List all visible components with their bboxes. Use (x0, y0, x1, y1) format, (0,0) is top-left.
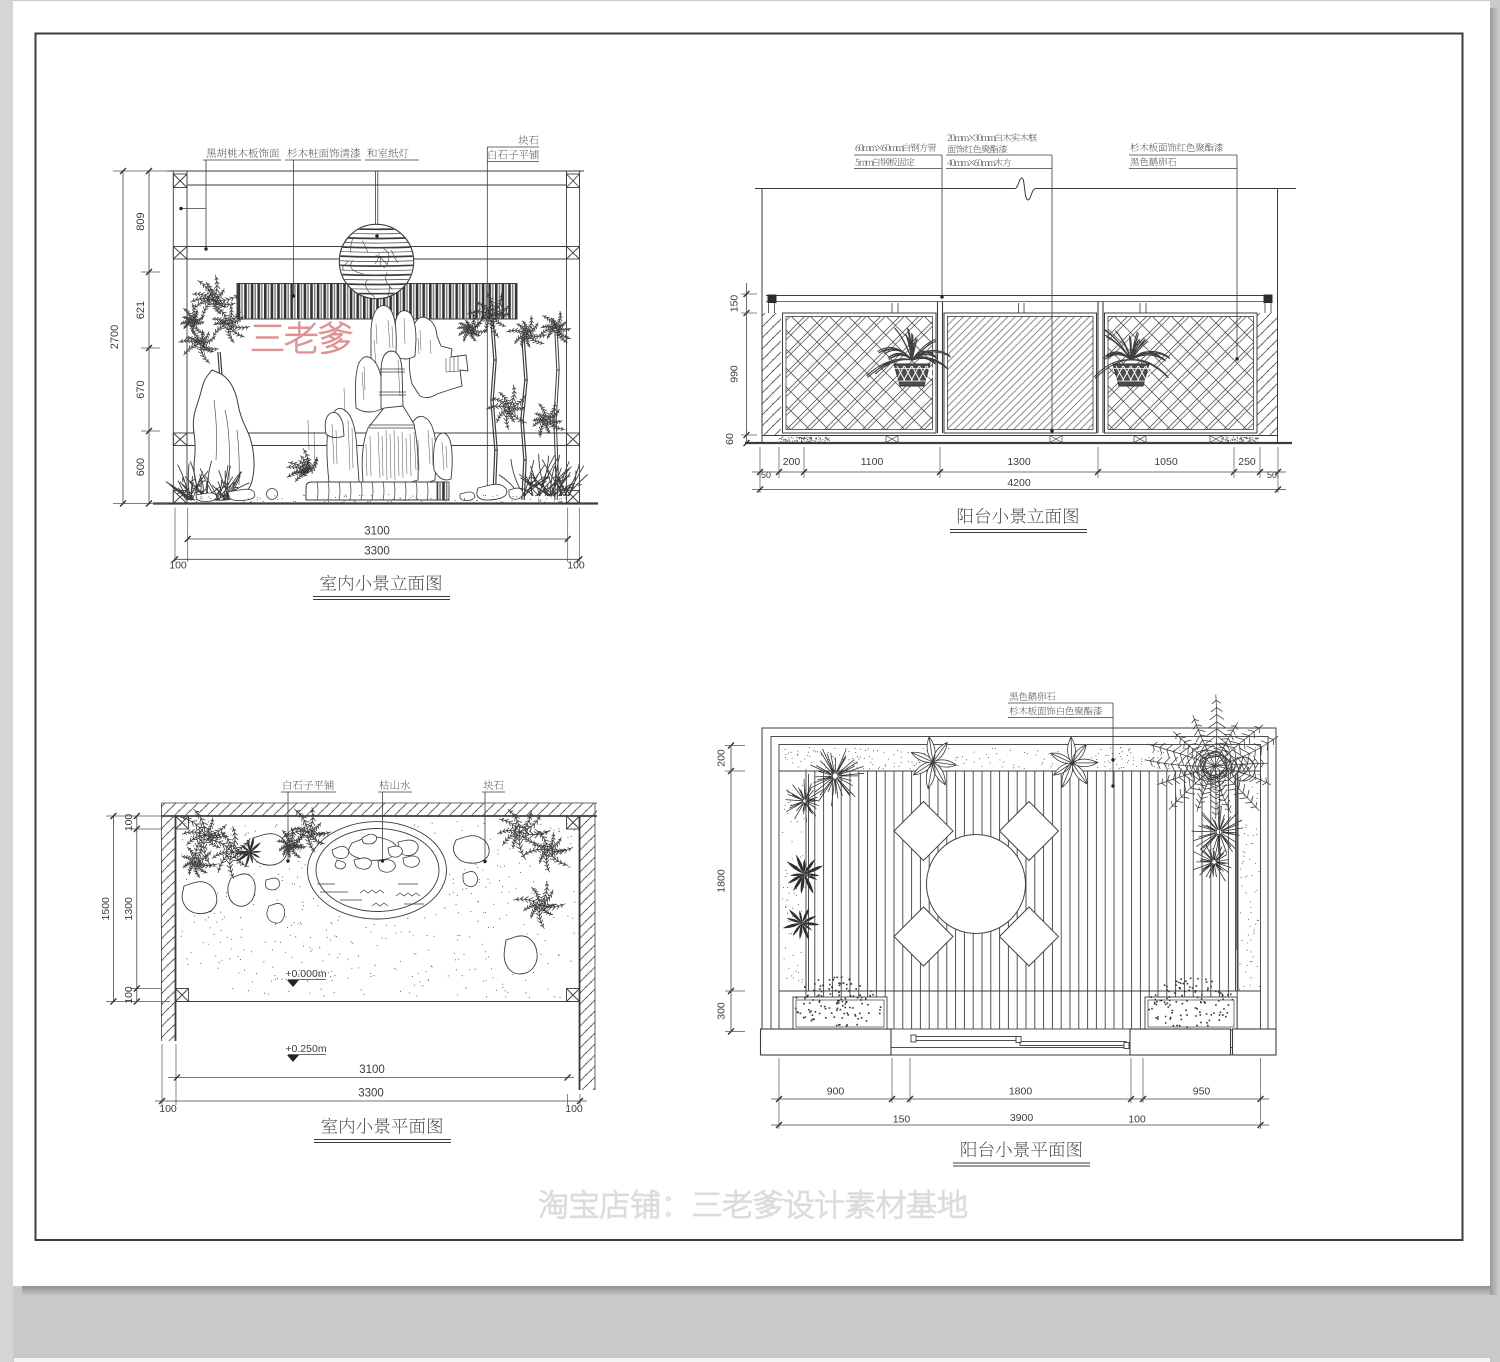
svg-text:100: 100 (169, 560, 187, 572)
svg-text:100: 100 (123, 986, 135, 1004)
svg-text:50: 50 (761, 470, 771, 480)
svg-text:150: 150 (893, 1114, 911, 1126)
svg-text:200: 200 (716, 749, 728, 767)
svg-text:1300: 1300 (123, 897, 135, 921)
svg-text:+0.000m: +0.000m (285, 968, 326, 980)
svg-text:50: 50 (1267, 470, 1277, 480)
svg-text:3100: 3100 (364, 526, 390, 538)
svg-text:250: 250 (1238, 456, 1256, 468)
svg-text:60: 60 (724, 433, 736, 445)
svg-text:3300: 3300 (364, 546, 390, 558)
svg-text:3900: 3900 (1010, 1112, 1034, 1124)
svg-text:100: 100 (567, 560, 585, 572)
svg-text:100: 100 (159, 1103, 177, 1115)
svg-text:670: 670 (135, 380, 147, 398)
svg-text:+0.250m: +0.250m (285, 1043, 326, 1055)
svg-text:4200: 4200 (1007, 477, 1031, 489)
svg-text:100: 100 (565, 1103, 583, 1115)
svg-text:809: 809 (135, 212, 147, 230)
svg-text:3300: 3300 (358, 1088, 384, 1100)
svg-text:1800: 1800 (716, 869, 728, 893)
svg-text:300: 300 (716, 1002, 728, 1020)
svg-text:621: 621 (135, 301, 147, 319)
svg-text:1050: 1050 (1154, 456, 1178, 468)
svg-text:200: 200 (783, 456, 801, 468)
svg-text:900: 900 (827, 1086, 845, 1098)
svg-text:1500: 1500 (100, 897, 112, 921)
svg-text:100: 100 (1128, 1114, 1146, 1126)
svg-text:2700: 2700 (109, 325, 121, 349)
svg-text:3100: 3100 (359, 1064, 385, 1076)
svg-text:1100: 1100 (861, 456, 884, 468)
svg-text:150: 150 (729, 295, 741, 313)
svg-text:990: 990 (729, 365, 741, 383)
svg-text:1300: 1300 (1007, 456, 1031, 468)
svg-text:950: 950 (1193, 1086, 1211, 1098)
svg-text:100: 100 (123, 814, 135, 832)
svg-text:1800: 1800 (1009, 1086, 1033, 1098)
svg-text:600: 600 (135, 458, 147, 476)
